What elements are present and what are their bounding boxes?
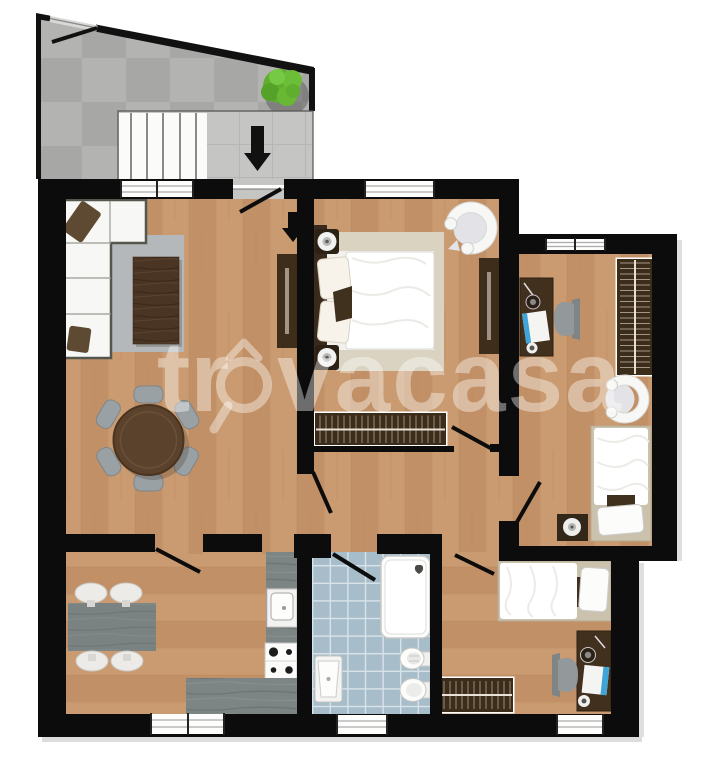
svg-text:vacasa: vacasa [277, 321, 623, 433]
